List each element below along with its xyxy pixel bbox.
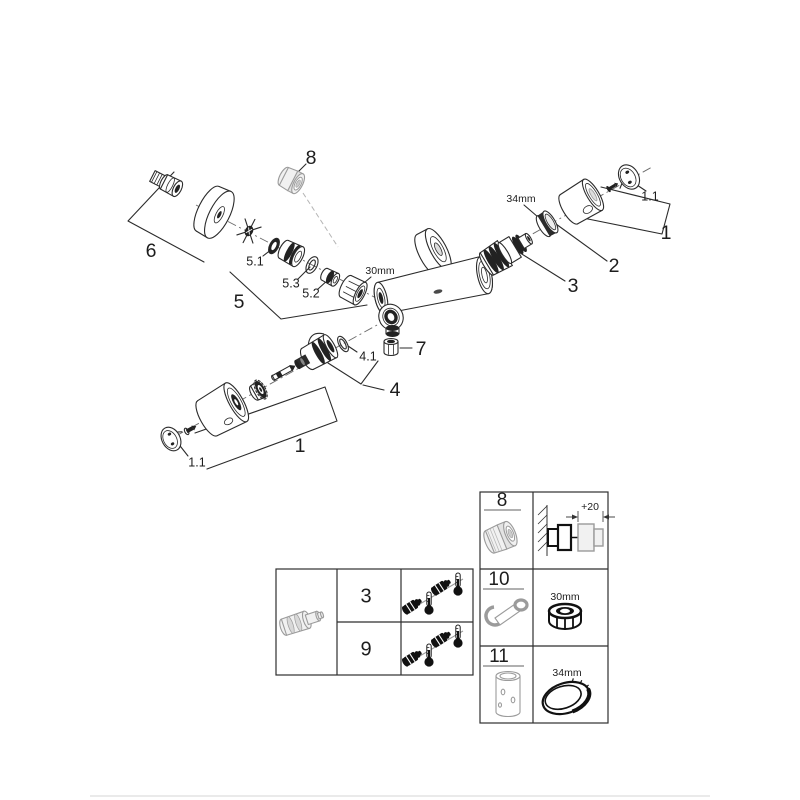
callout-7: 7: [416, 338, 427, 360]
part1-1-cap-lower: [157, 422, 188, 455]
check-valve-set-row9: [401, 625, 463, 668]
diverter-stem-screw: [270, 363, 297, 382]
table-ref-10: 10: [488, 569, 509, 590]
part4-diverter-cartridge: [287, 328, 341, 377]
part7-nut: [384, 339, 398, 356]
nut-30mm-icon: [549, 604, 581, 630]
exploded-parts-diagram: 8 6 5.1 5.3 5.2 5 30mm 34mm 1.1 1 2 3 7 …: [0, 0, 800, 800]
diagram-page: 8 6 5.1 5.3 5.2 5 30mm 34mm 1.1 1 2 3 7 …: [0, 0, 800, 800]
callout-4: 4: [390, 379, 401, 401]
dim-30mm-table: 30mm: [550, 591, 579, 603]
callout-5-1: 5.1: [246, 254, 263, 268]
check-valve-icon: [401, 596, 424, 616]
thermometer-icon: [424, 592, 433, 615]
dim-34mm-table: 34mm: [552, 667, 581, 679]
part2-ring-34mm: [533, 209, 560, 239]
splined-adapter: [246, 378, 270, 404]
check-valve-set-row3: [401, 573, 463, 616]
dim-30mm: 30mm: [365, 265, 394, 277]
union-nut-30mm: [336, 273, 370, 307]
thermometer-icon: [424, 644, 433, 667]
callout-6: 6: [146, 240, 157, 262]
dim-plus20: +20: [581, 501, 599, 513]
table-ref-3: 3: [360, 585, 371, 607]
callout-3: 3: [568, 275, 579, 297]
part8-install-leader: [303, 193, 338, 247]
table-ref-9: 9: [360, 638, 371, 660]
cartridge-part-icon: [278, 606, 326, 637]
part1-1-cap-right: [611, 161, 644, 195]
extension-part-icon: [481, 520, 520, 556]
shower-outlet: [386, 325, 399, 337]
callout-4-1: 4.1: [359, 349, 376, 363]
part5-2-bushing: [319, 267, 342, 288]
part5-1-holder: [275, 238, 307, 269]
check-valve-icon: [401, 648, 424, 668]
part8-extension: [275, 165, 307, 196]
callout-1-1-right: 1.1: [641, 189, 658, 203]
callout-1-1-lower: 1.1: [188, 455, 205, 469]
part6-escutcheon: [188, 182, 240, 243]
wrench-icon: [486, 600, 527, 625]
service-table-right: 8 +20 10: [480, 490, 615, 723]
callout-5-3: 5.3: [282, 276, 299, 290]
callout-8: 8: [306, 147, 317, 169]
table-ref-8: 8: [497, 490, 508, 511]
callout-5: 5: [234, 291, 245, 313]
dim-34mm: 34mm: [506, 193, 535, 205]
callout-5-2: 5.2: [302, 286, 319, 300]
table-ref-11: 11: [489, 646, 509, 667]
callout-1-lower: 1: [295, 435, 306, 457]
callout-1-right: 1: [661, 222, 672, 244]
part1-handle-sleeve: [555, 176, 608, 227]
sleeve-tool-icon: [496, 672, 520, 717]
extension-install-sketch: +20: [538, 501, 615, 556]
wall-hatch: [538, 506, 547, 551]
part4-1-oring: [335, 335, 350, 354]
ring-34mm-icon: [538, 675, 595, 720]
service-table-left: 3 9: [276, 569, 473, 675]
callout-2: 2: [609, 255, 620, 277]
star-adapter: [235, 215, 263, 246]
